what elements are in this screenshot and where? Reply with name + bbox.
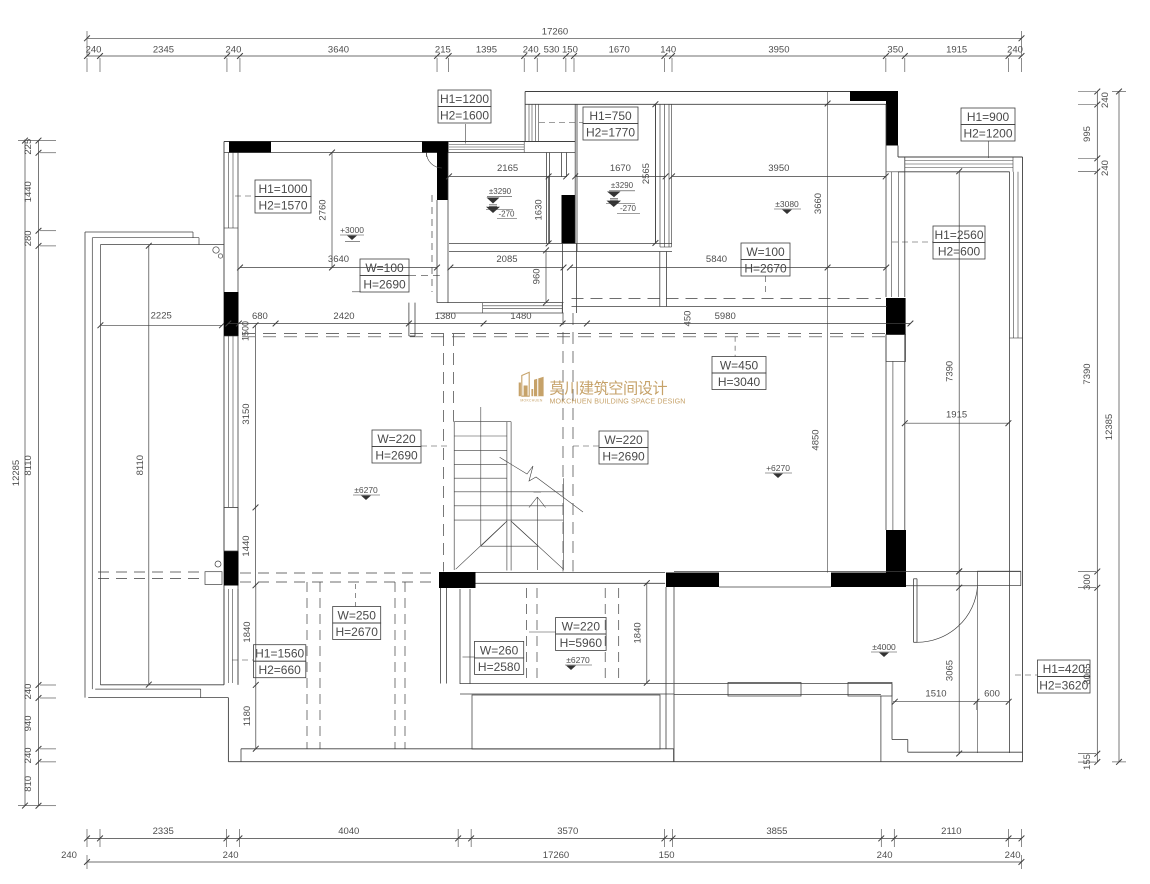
svg-text:MOKCHUEN BUILDING SPACE DESIGN: MOKCHUEN BUILDING SPACE DESIGN [550, 397, 686, 405]
svg-text:240: 240 [61, 850, 77, 861]
svg-text:+3000: +3000 [340, 225, 364, 235]
svg-text:240: 240 [1100, 160, 1111, 176]
svg-text:1440: 1440 [241, 535, 252, 556]
svg-text:±4000: ±4000 [872, 642, 896, 652]
svg-text:12385: 12385 [1104, 414, 1115, 440]
svg-text:960: 960 [532, 268, 543, 284]
svg-text:350: 350 [887, 44, 903, 55]
svg-text:4040: 4040 [338, 826, 359, 837]
svg-text:8110: 8110 [135, 455, 146, 475]
svg-text:215: 215 [435, 44, 451, 55]
svg-text:995: 995 [1082, 126, 1093, 142]
svg-text:莫川建筑空间设计: 莫川建筑空间设计 [550, 380, 668, 397]
svg-text:17260: 17260 [543, 850, 569, 861]
svg-text:1500: 1500 [240, 321, 250, 341]
svg-text:2760: 2760 [318, 199, 329, 220]
svg-text:±6270: ±6270 [566, 655, 590, 665]
svg-text:H2=660: H2=660 [258, 663, 301, 677]
svg-text:1670: 1670 [610, 163, 631, 174]
svg-text:H1=1560: H1=1560 [255, 647, 304, 661]
svg-text:530: 530 [544, 44, 560, 55]
svg-text:W=100: W=100 [365, 261, 404, 275]
svg-text:2165: 2165 [497, 163, 518, 174]
svg-text:H1=750: H1=750 [589, 109, 632, 123]
svg-text:1380: 1380 [435, 311, 456, 322]
svg-text:W=260: W=260 [480, 643, 519, 657]
svg-text:2565: 2565 [641, 163, 652, 184]
svg-text:5840: 5840 [706, 254, 727, 265]
svg-text:240: 240 [523, 44, 539, 55]
svg-text:140: 140 [660, 44, 676, 55]
svg-text:H=2690: H=2690 [375, 449, 418, 463]
svg-text:1915: 1915 [946, 410, 967, 421]
svg-text:H=2690: H=2690 [363, 278, 406, 292]
svg-text:3065: 3065 [945, 660, 956, 681]
svg-text:2420: 2420 [333, 311, 354, 322]
svg-text:±3290: ±3290 [489, 187, 512, 196]
svg-text:1840: 1840 [242, 621, 253, 642]
svg-text:3950: 3950 [768, 163, 789, 174]
svg-text:W=250: W=250 [338, 609, 377, 623]
svg-text:H2=600: H2=600 [938, 245, 981, 259]
svg-text:5980: 5980 [715, 311, 736, 322]
svg-text:H1=1200: H1=1200 [440, 92, 489, 106]
svg-text:W=100: W=100 [746, 245, 785, 259]
svg-text:H1=1000: H1=1000 [258, 182, 307, 196]
svg-text:H1=900: H1=900 [967, 110, 1010, 124]
svg-text:3660: 3660 [813, 193, 824, 214]
svg-text:150: 150 [659, 850, 675, 861]
svg-text:±6270: ±6270 [354, 485, 378, 495]
svg-text:240: 240 [1100, 92, 1111, 108]
svg-text:2335: 2335 [153, 826, 174, 837]
svg-text:3640: 3640 [328, 44, 349, 55]
svg-text:1510: 1510 [925, 689, 946, 700]
svg-text:3950: 3950 [768, 44, 789, 55]
svg-text:240: 240 [1005, 850, 1021, 861]
svg-text:2085: 2085 [496, 254, 517, 265]
svg-text:H1=2560: H1=2560 [934, 228, 983, 242]
svg-text:2110: 2110 [941, 826, 961, 837]
svg-text:H2=1770: H2=1770 [586, 126, 635, 140]
svg-text:240: 240 [226, 44, 242, 55]
svg-text:±3080: ±3080 [775, 199, 799, 209]
svg-text:150: 150 [562, 44, 578, 55]
svg-text:1670: 1670 [609, 44, 630, 55]
svg-text:3640: 3640 [328, 254, 349, 265]
svg-text:MOKCHUEN: MOKCHUEN [520, 399, 542, 403]
svg-text:H2=3620: H2=3620 [1039, 679, 1088, 693]
svg-text:240: 240 [223, 850, 239, 861]
svg-text:1395: 1395 [476, 44, 497, 55]
svg-text:H2=1600: H2=1600 [440, 109, 489, 123]
svg-text:4850: 4850 [811, 429, 822, 450]
svg-text:3855: 3855 [766, 826, 787, 837]
svg-text:600: 600 [984, 689, 1000, 700]
svg-text:H=2670: H=2670 [744, 262, 787, 276]
svg-text:1630: 1630 [534, 199, 545, 220]
svg-text:+6270: +6270 [766, 463, 790, 473]
svg-text:3150: 3150 [241, 403, 252, 424]
svg-text:3570: 3570 [557, 826, 578, 837]
svg-text:1480: 1480 [510, 311, 531, 322]
svg-text:W=450: W=450 [720, 359, 759, 373]
svg-text:1915: 1915 [946, 44, 967, 55]
svg-text:7390: 7390 [945, 361, 956, 382]
svg-text:680: 680 [252, 311, 268, 322]
svg-text:12285: 12285 [11, 460, 22, 486]
svg-text:±3290: ±3290 [611, 181, 634, 190]
svg-text:H2=1200: H2=1200 [963, 127, 1012, 141]
svg-text:240: 240 [86, 44, 102, 55]
svg-text:W=220: W=220 [604, 433, 643, 447]
svg-text:17260: 17260 [542, 27, 568, 38]
svg-text:2225: 2225 [151, 311, 172, 322]
svg-text:240: 240 [1007, 44, 1023, 55]
svg-text:450: 450 [683, 311, 694, 327]
svg-text:240: 240 [877, 850, 893, 861]
svg-text:H=2580: H=2580 [478, 660, 521, 674]
svg-text:-270: -270 [620, 204, 637, 213]
svg-text:H1=420: H1=420 [1043, 662, 1086, 676]
svg-text:300: 300 [1082, 574, 1093, 590]
svg-text:W=220: W=220 [377, 432, 416, 446]
svg-text:155: 155 [1082, 754, 1093, 770]
svg-text:2345: 2345 [153, 44, 174, 55]
svg-text:1180: 1180 [242, 706, 253, 726]
svg-text:W=220: W=220 [562, 620, 601, 634]
svg-text:-270: -270 [498, 210, 515, 219]
svg-text:H=3040: H=3040 [718, 375, 761, 389]
svg-text:1840: 1840 [633, 622, 644, 643]
svg-text:H2=1570: H2=1570 [258, 199, 307, 213]
svg-text:7390: 7390 [1082, 363, 1093, 384]
svg-text:H=2690: H=2690 [602, 450, 645, 464]
svg-text:H=5960: H=5960 [560, 636, 603, 650]
svg-text:H=2670: H=2670 [336, 625, 379, 639]
